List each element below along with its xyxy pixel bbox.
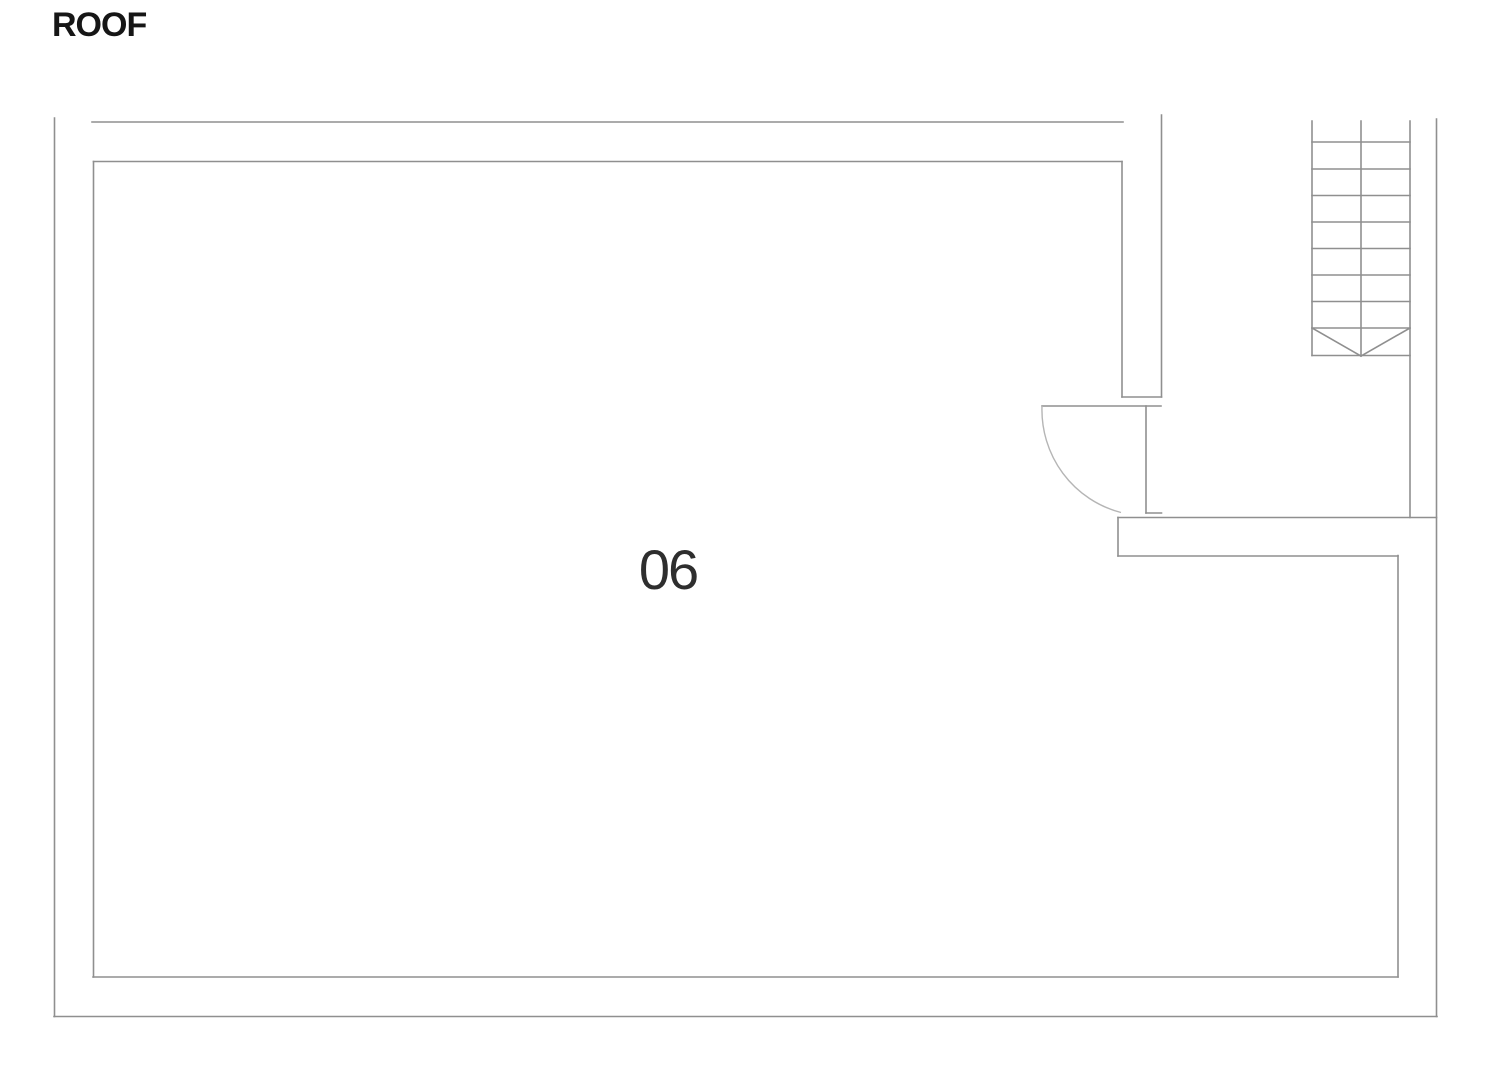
room-number-label: 06 bbox=[639, 542, 697, 598]
door bbox=[1042, 406, 1162, 513]
floor-plan-page: ROOF 06 bbox=[0, 0, 1500, 1092]
door-swing-arc bbox=[1042, 406, 1121, 513]
floor-plan-svg bbox=[0, 0, 1500, 1092]
stair-arrow-left-diagonal bbox=[1312, 328, 1361, 356]
walls-group bbox=[54, 115, 1437, 1017]
staircase bbox=[1312, 121, 1410, 518]
stair-arrow-right-diagonal bbox=[1361, 328, 1410, 356]
